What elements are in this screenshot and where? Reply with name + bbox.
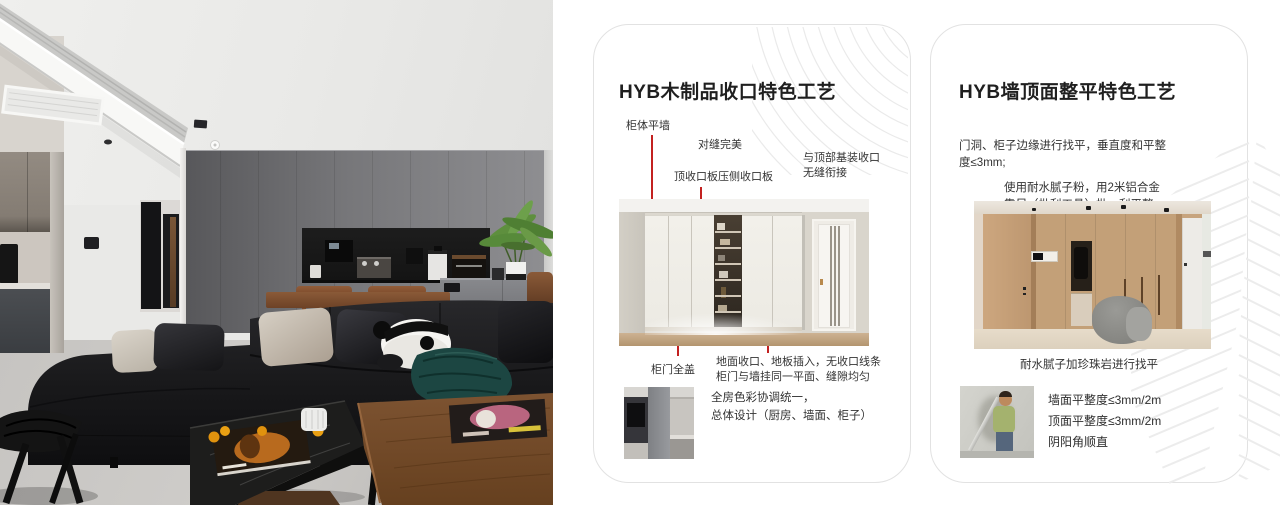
card-wall-leveling-craft: HYB墙顶面整平特色工艺 门洞、柜子边缘进行找平，垂直度和平整 度≤3mm; 使… xyxy=(930,24,1248,483)
callout-top-joint-line1: 与顶部基装收口 xyxy=(803,151,880,166)
wood-door xyxy=(983,214,1031,329)
bullet-corners-straight: 阴阳角顺直 xyxy=(1048,433,1108,450)
shelf xyxy=(715,279,741,281)
hanging-clothes xyxy=(1074,247,1088,279)
wood-hallway-photo xyxy=(974,201,1211,349)
cream-pillow xyxy=(258,307,334,367)
worker-shirt xyxy=(993,406,1015,433)
white-mug xyxy=(301,408,327,431)
ottoman xyxy=(1126,307,1152,341)
para1-line2: 度≤3mm; xyxy=(959,155,1006,172)
card-wood-finish-craft: HYB木制品收口特色工艺 柜体平墙 对缝完美 顶收口板压侧收口板 与顶部基装收口… xyxy=(593,24,911,483)
card1-title: HYB木制品收口特色工艺 xyxy=(619,77,836,104)
photo-caption: 耐水腻子加珍珠岩进行找平 xyxy=(951,356,1227,372)
thumb-tv xyxy=(627,403,645,427)
shelf-item xyxy=(719,271,728,278)
bullet-wall-flatness: 墙面平整度≤3mm/2m xyxy=(1048,391,1161,408)
wall-device xyxy=(1203,251,1211,257)
glass-rack xyxy=(357,257,391,278)
door-wood-trim xyxy=(170,217,176,307)
note-line-1: 地面收口、地板插入，无收口线条 xyxy=(716,355,881,370)
switch-screen xyxy=(1033,253,1043,260)
shelf-item xyxy=(718,255,725,261)
callout-top-board: 顶收口板压侧收口板 xyxy=(674,170,773,185)
floor-reflection xyxy=(645,313,802,335)
living-room-photo xyxy=(0,0,553,505)
spotlight xyxy=(1121,205,1126,209)
unit-screen xyxy=(329,243,339,249)
note-line-2: 柜门与墙挂同一平面、缝隙均匀 xyxy=(716,370,870,385)
door-slat xyxy=(838,226,840,326)
para2-line1: 使用耐水腻子粉，用2米铝合金 xyxy=(1004,180,1160,197)
render-left-wall xyxy=(619,212,645,333)
callout-top-joint: 与顶部基装收口 无缝衔接 xyxy=(803,151,880,181)
shelf-item xyxy=(717,223,725,230)
small-pot xyxy=(492,268,504,280)
callout-cabinet-flush-wall: 柜体平墙 xyxy=(626,119,670,134)
espresso-white xyxy=(428,250,447,280)
thumb-floor xyxy=(624,443,648,459)
cabinet-seam xyxy=(27,152,28,232)
thumb-gray-column xyxy=(648,387,670,459)
door-handle xyxy=(1023,287,1026,290)
photo-floor xyxy=(974,329,1211,349)
door-handle xyxy=(1184,263,1187,266)
ceiling-vent xyxy=(194,120,208,129)
thumb-floor xyxy=(960,451,1034,458)
thumb-worker-photo xyxy=(960,386,1034,458)
thumb-lower-cabinet xyxy=(670,439,694,459)
spotlight xyxy=(104,140,112,145)
glass xyxy=(374,261,379,266)
door-lock xyxy=(1023,293,1026,295)
magazine xyxy=(449,399,547,444)
page: HYB木制品收口特色工艺 柜体平墙 对缝完美 顶收口板压侧收口板 与顶部基装收口… xyxy=(0,0,1280,505)
hallway-door-1 xyxy=(141,202,161,309)
ceiling-diffuser xyxy=(0,0,553,200)
built-in-appliance xyxy=(0,244,18,284)
cream-pillow xyxy=(111,329,159,373)
shelf-item xyxy=(720,239,730,245)
door-handle xyxy=(820,279,823,285)
spotlight xyxy=(1164,208,1169,212)
shelf xyxy=(715,295,741,297)
photo-ceiling xyxy=(974,201,1211,214)
callout-perfect-seam: 对缝完美 xyxy=(698,138,742,153)
left-wall-strip xyxy=(974,214,983,329)
shelf xyxy=(715,263,741,265)
summary-line-2: 总体设计（厨房、墙面、柜子） xyxy=(711,409,872,424)
wardrobe-shadow xyxy=(802,215,805,330)
black-stool xyxy=(0,398,125,505)
door-slat xyxy=(834,226,836,326)
summary-line-1: 全房色彩协调统一， xyxy=(711,391,815,406)
open-white-door xyxy=(1182,218,1203,329)
light-switch xyxy=(84,237,99,249)
render-ceiling xyxy=(619,199,869,213)
spotlight xyxy=(1032,208,1036,211)
bullet-ceiling-flatness: 顶面平整度≤3mm/2m xyxy=(1048,412,1161,429)
wardrobe-render-image xyxy=(619,199,869,346)
card2-title: HYB墙顶面整平特色工艺 xyxy=(959,77,1176,104)
walnut-coffee-table xyxy=(350,390,553,505)
worker-hair xyxy=(999,391,1012,397)
espresso-black xyxy=(406,248,423,264)
socket xyxy=(434,246,442,251)
callout-door-full-cover: 柜门全盖 xyxy=(651,363,695,378)
glass xyxy=(362,261,367,266)
handle-groove xyxy=(1158,275,1160,315)
thumb-kitchen-cabinet xyxy=(670,399,694,435)
shelf xyxy=(715,231,741,233)
right-wall xyxy=(1202,214,1211,329)
shelf xyxy=(715,247,741,249)
thumb-room-photo xyxy=(624,387,694,459)
spotlight xyxy=(1086,206,1091,210)
callout-top-joint-line2: 无缝衔接 xyxy=(803,166,880,181)
para1-line1: 门洞、柜子边缘进行找平，垂直度和平整 xyxy=(959,138,1166,155)
black-pillow xyxy=(153,323,225,371)
door-slat xyxy=(830,226,832,326)
outlet xyxy=(444,283,460,292)
closet-drawers xyxy=(1071,293,1092,326)
mug xyxy=(310,265,321,278)
